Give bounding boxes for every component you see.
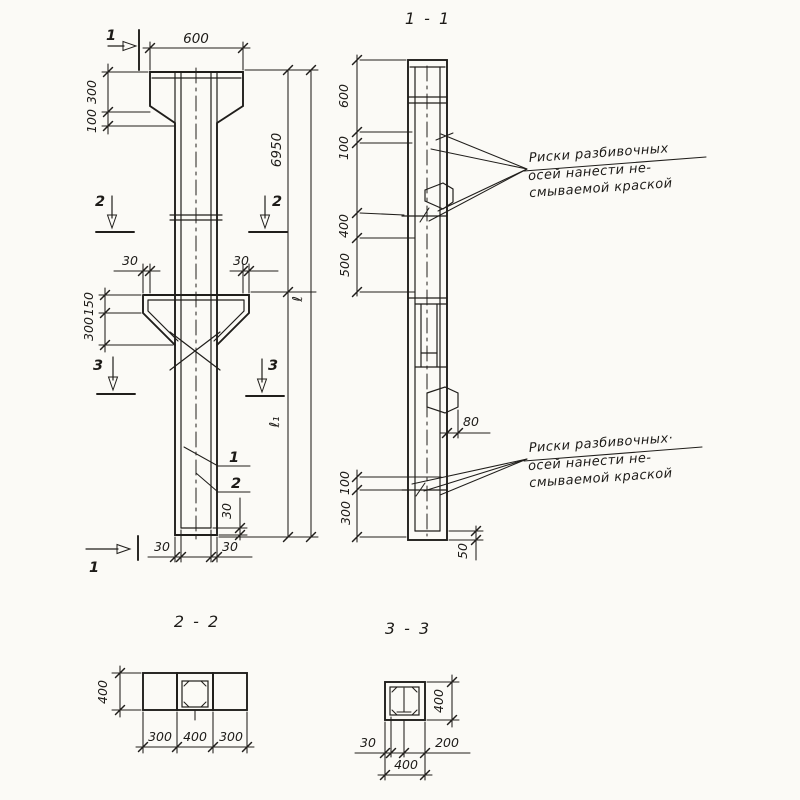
section-mark-1-bottom: 1	[86, 536, 138, 576]
section-mark-label: 3	[268, 358, 278, 374]
engineering-drawing-sheet: 600 300 100 30 30	[0, 0, 800, 800]
dim-chain-lower: 100 300	[337, 470, 410, 542]
note-paint-marks-bottom: Риски разбивочных· осей нанести не- смыв…	[412, 431, 702, 495]
section-mark-label: 3	[93, 358, 103, 374]
note-paint-marks-top: Риски разбивочных осей нанести не- смыва…	[429, 134, 706, 221]
section-mark-2-right: 2	[249, 194, 287, 232]
lifting-loop-bottom: 80	[427, 387, 490, 438]
view-title: 3 - 3	[385, 619, 431, 638]
dim-label: 300	[338, 501, 353, 525]
dim-label: ℓ	[290, 296, 306, 303]
dim-label: 400	[431, 689, 446, 713]
lifting-loop-top	[425, 183, 453, 209]
dim-label: 600	[336, 84, 351, 108]
section-mark-1-top: 1	[106, 28, 139, 70]
dim-label: 400	[95, 680, 110, 704]
dim-label: 30	[122, 253, 138, 268]
dim-label: 400	[183, 729, 207, 744]
section-3-3-view: 3 - 3 400 30 200	[355, 619, 470, 780]
dim-label: 600	[183, 31, 209, 47]
dim-label: 300	[81, 317, 96, 341]
section-mark-label: 1	[89, 560, 99, 576]
corbel-section-shape	[143, 673, 247, 720]
dim-base-cover: 50	[449, 526, 483, 560]
dim-label: 50	[455, 543, 470, 559]
dim-top-width: 600	[143, 31, 250, 70]
callout-rebar-2: 2	[196, 473, 250, 492]
section-mark-label: 2	[272, 194, 282, 210]
dim-label: 100	[336, 136, 351, 160]
view-title: 2 - 2	[174, 612, 220, 631]
dim-label: 300	[84, 80, 99, 104]
dim-label: 100	[84, 109, 99, 133]
callout-label: 2	[231, 476, 241, 492]
dim-label: 30	[154, 539, 170, 554]
dim-label: 400	[394, 757, 418, 772]
dim-label: 100	[337, 471, 352, 495]
dim-chain-upper: 600 100 400 500	[336, 55, 415, 297]
dim-corbel-height: 150 300	[81, 288, 173, 352]
dim-label: 400	[336, 214, 351, 238]
view-title: 1 - 1	[405, 9, 451, 28]
dim-label: ℓ₁	[267, 417, 283, 429]
dim-overall: 6950 ℓ₁ ℓ	[219, 66, 318, 542]
dim-3-3-widths: 30 200 400	[355, 717, 470, 780]
note-line: Риски разбивочных·	[528, 431, 673, 456]
column-outline	[150, 68, 243, 540]
dim-label: 300	[148, 729, 172, 744]
front-view: 600 300 100 30 30	[81, 28, 318, 576]
dim-2-2-height: 400	[95, 666, 141, 717]
section-mark-3-left: 3	[93, 357, 135, 394]
section-mark-3-right: 3	[246, 358, 284, 396]
section-mark-label: 2	[95, 194, 105, 210]
dim-label: 30	[360, 735, 376, 750]
callout-label: 1	[229, 450, 239, 466]
dim-label: 30	[219, 503, 234, 519]
dim-label: 150	[81, 292, 96, 316]
dim-label: 200	[435, 735, 459, 750]
section-mark-2-left: 2	[95, 194, 134, 232]
dim-3-3-height: 400	[427, 675, 459, 727]
drawing-canvas: 600 300 100 30 30	[0, 0, 800, 800]
dim-label: 30	[233, 253, 249, 268]
section-mark-label: 1	[106, 28, 116, 44]
dim-label: 80	[463, 414, 479, 429]
dim-label: 500	[337, 253, 352, 277]
dim-label: 30	[222, 539, 238, 554]
dim-cap: 300 100	[84, 64, 174, 134]
section-1-1-view: 1 - 1	[336, 9, 706, 560]
section-2-2-view: 2 - 2 400 300 400	[95, 612, 254, 753]
dim-label: 6950	[269, 133, 285, 167]
dim-bottom-cover: 30	[213, 498, 247, 540]
dim-label: 300	[219, 729, 243, 744]
